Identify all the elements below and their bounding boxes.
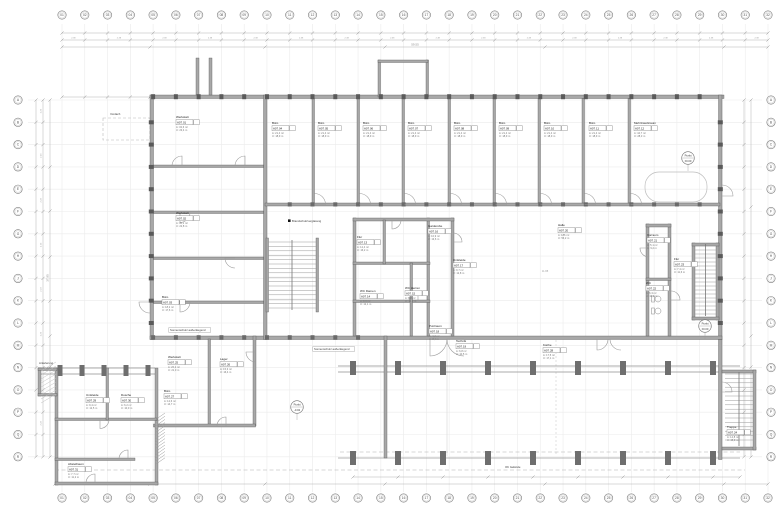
dim-text: 2.38 — [618, 38, 623, 40]
room-perimeter: U: 10,0 m — [121, 406, 132, 410]
annotation-text: Brandschutzverglasung — [292, 219, 322, 223]
grid-bubble-label: 17 — [425, 13, 429, 17]
room-tag: VorraumA07.21A: 5,1 m²U: 9,2 m — [647, 233, 670, 250]
room-id: A07.25 — [169, 361, 179, 365]
grid-bubble: 31 — [741, 494, 749, 502]
grid-bubble-label: 32 — [766, 496, 770, 500]
dim-text: 2.23 — [41, 108, 43, 113]
grid-bubble: K — [14, 297, 22, 305]
grid-bubble-label: 12 — [311, 496, 315, 500]
planning-grid — [28, 24, 768, 492]
grid-bubble-label: 12 — [311, 13, 315, 17]
grid-bubble: G — [14, 230, 22, 238]
dim-text: 2.38 — [71, 38, 76, 40]
annotation: OK Gelände — [505, 465, 521, 469]
grid-bubble-label: 06 — [174, 13, 178, 17]
grid-bubble: 09 — [240, 494, 248, 502]
door-swing — [671, 291, 680, 300]
grid-bubble-label: 03 — [106, 496, 110, 500]
door-swing — [453, 233, 462, 242]
grid-bubble: 14 — [354, 11, 362, 19]
grid-bubble-label: 08 — [220, 13, 224, 17]
grid-bubble-label: 27 — [652, 496, 656, 500]
room-name: Abstellraum — [68, 462, 84, 466]
grid-bubble: 32 — [764, 494, 772, 502]
grid-bubble: E — [14, 185, 22, 193]
door-swing — [430, 339, 447, 356]
grid-bubble: R — [14, 453, 22, 461]
room-id: A07.27 — [165, 395, 175, 399]
grid-bubble: 02 — [81, 11, 89, 19]
grid-bubble: 29 — [695, 11, 703, 19]
grid-bubble: J — [767, 274, 775, 282]
room-name: Büro — [162, 295, 169, 299]
door-swing — [610, 339, 621, 350]
grid-bubble-label: Q — [770, 433, 773, 437]
room-perimeter: U: 18,9 m — [318, 134, 329, 138]
room-id: A07.08 — [455, 127, 465, 131]
room-name: Büro — [363, 121, 370, 125]
door-swing — [119, 450, 128, 459]
grid-bubble-label: 24 — [584, 496, 588, 500]
room-id: A07.31 — [69, 468, 79, 472]
dim-text: 2.23 — [41, 242, 43, 247]
annotation: Sonnenschutz außenliegend — [313, 347, 355, 352]
grid-bubble: 13 — [331, 494, 339, 502]
dim-text: 2.23 — [41, 153, 43, 158]
room-perimeter: U: 21,0 m — [168, 368, 179, 372]
room-perimeter: U: 11,6 m — [674, 270, 685, 274]
grid-bubble-label: L — [770, 321, 772, 325]
room-id: A07.30 — [122, 399, 132, 403]
grid-bubble: 16 — [399, 494, 407, 502]
grid-bubble-label: 07 — [197, 496, 201, 500]
annotation-text: Vordach — [110, 112, 121, 116]
grid-bubble: 31 — [741, 11, 749, 19]
grid-bubble-label: 28 — [675, 13, 679, 17]
room-perimeter: U: 16,2 m — [357, 248, 368, 252]
room-tag: TechnikA07.19A: 6,8 m²U: 10,5 m — [456, 339, 479, 356]
punkt-label: Punkt — [702, 322, 709, 326]
grid-bubble-label: 14 — [356, 13, 360, 17]
grid-bubble-label: 14 — [356, 496, 360, 500]
room-perimeter: U: 11,2 m — [68, 475, 79, 479]
room-tag: WerkstattA07.01A: 32,6 m²U: 23,4 m — [176, 115, 199, 132]
room-tag: BüroA07.05A: 21,4 m²U: 18,9 m — [318, 121, 341, 138]
room-tag: BüroA07.04A: 21,4 m²U: 18,9 m — [272, 121, 295, 138]
room-id: A07.20 — [559, 229, 569, 233]
room-name: Werkstatt — [176, 115, 189, 119]
punkt-marker: Punkt-0.02 — [291, 401, 304, 420]
grid-bubble: 27 — [650, 11, 658, 19]
grid-bubble-label: 24 — [584, 13, 588, 17]
grid-bubble-label: 23 — [561, 13, 565, 17]
grid-bubble: 15 — [377, 11, 385, 19]
grid-bubble: 05 — [149, 11, 157, 19]
grid-bubble: 21 — [513, 11, 521, 19]
grid-bubble: 30 — [718, 11, 726, 19]
door-swing — [235, 156, 245, 166]
room-id: A07.22 — [647, 287, 657, 291]
room-name: Halle — [558, 223, 565, 227]
room-perimeter: U: 12,3 m — [405, 299, 416, 303]
dim-text: 2.38 — [253, 38, 258, 40]
grid-bubble: 18 — [445, 11, 453, 19]
annotation: Anlieferung — [39, 361, 54, 365]
room-tag: FlurA07.13A: 12,4 m²U: 16,2 m — [357, 235, 380, 252]
annotation: Sonnenschutz außenliegend — [169, 328, 211, 333]
grid-bubble: N — [14, 363, 22, 371]
room-perimeter: U: 16,4 m — [220, 370, 231, 374]
grid-bubble: M — [767, 341, 775, 349]
room-name: Büro — [318, 121, 325, 125]
room-id: A07.26 — [221, 363, 231, 367]
grid-bubble: O — [767, 386, 775, 394]
door-swing — [597, 339, 608, 350]
grid-bubbles: 0101020203030404050506060707080809091010… — [14, 11, 775, 502]
room-perimeter: U: 12,5 m — [86, 406, 97, 410]
dim-total-top: 59.55 — [411, 43, 419, 47]
grid-bubble-label: 11 — [288, 13, 292, 17]
grid-bubble: D — [767, 163, 775, 171]
dim-text: 2.38 — [299, 38, 304, 40]
room-name: WC Damen — [360, 289, 376, 293]
room-name: Umkleide — [86, 393, 99, 397]
grid-bubble-label: 28 — [675, 496, 679, 500]
hatch — [41, 362, 165, 465]
grid-bubble-label: 25 — [607, 13, 611, 17]
grid-bubble: P — [14, 408, 22, 416]
dim-text: 2.23 — [41, 287, 43, 292]
room-name: Büro — [499, 121, 506, 125]
grid-bubble: Q — [767, 430, 775, 438]
grid-bubble-label: 03 — [106, 13, 110, 17]
room-perimeter: U: 17,1 m — [543, 356, 554, 360]
dim-text: 2.38 — [709, 38, 714, 40]
grid-bubble: 25 — [604, 494, 612, 502]
room-tag: BüroA07.08A: 21,4 m²U: 18,9 m — [454, 121, 477, 138]
door-swing — [722, 185, 733, 196]
room-perimeter: U: 9,2 m — [647, 246, 657, 250]
grid-bubble-label: 26 — [630, 496, 634, 500]
room-name: Dusche — [121, 393, 132, 397]
room-perimeter: U: 10,1 m — [646, 294, 657, 298]
room-name: Büro — [408, 121, 415, 125]
grid-bubble: 27 — [650, 494, 658, 502]
room-id: A07.24 — [728, 431, 738, 435]
grid-bubble-label: 05 — [151, 13, 155, 17]
room-tag: BüroA07.06A: 21,4 m²U: 18,9 m — [363, 121, 386, 138]
grid-bubble-label: 16 — [402, 13, 406, 17]
room-tag: AbstellraumA07.31A: 7,7 m²U: 11,2 m — [68, 462, 91, 479]
room-name: Putzraum — [429, 324, 442, 328]
grid-bubble: 03 — [103, 494, 111, 502]
grid-bubble-label: 20 — [493, 13, 497, 17]
room-perimeter: U: 22,8 m — [176, 224, 187, 228]
room-id: A07.16 — [429, 230, 439, 234]
room-perimeter: U: 12,1 m — [360, 302, 371, 306]
grid-bubble-label: 22 — [538, 13, 542, 17]
room-id: A07.29 — [87, 399, 97, 403]
room-name: Flur — [357, 235, 362, 239]
door-swing — [172, 156, 182, 166]
grid-bubble-label: 09 — [242, 13, 246, 17]
grid-bubble-label: 01 — [60, 13, 64, 17]
room-name: Flur — [674, 257, 679, 261]
grid-bubble: 09 — [240, 11, 248, 19]
grid-bubble-label: 10 — [265, 13, 269, 17]
grid-bubble-label: 27 — [652, 13, 656, 17]
grid-bubble: D — [14, 163, 22, 171]
room-name: WC — [646, 281, 652, 285]
grid-bubble: 29 — [695, 494, 703, 502]
punkt-value: ±0.00 — [685, 159, 692, 163]
room-tag: UmkleideA07.17A: 9,7 m²U: 12,8 m — [453, 258, 476, 275]
grid-bubble: M — [14, 341, 22, 349]
grid-bubble-label: 04 — [128, 13, 132, 17]
room-tag: DuscheA07.30A: 6,2 m²U: 10,0 m — [121, 393, 144, 410]
grid-bubble-label: Q — [17, 433, 20, 437]
grid-bubble: 08 — [217, 11, 225, 19]
room-id: A07.13 — [358, 241, 368, 245]
grid-bubble: J — [14, 274, 22, 282]
grid-bubble: 04 — [126, 11, 134, 19]
grid-bubble-label: 15 — [379, 496, 383, 500]
dim-text: 11.88 — [542, 269, 549, 273]
grid-bubble: 28 — [673, 494, 681, 502]
room-tag: WerkstattA07.25A: 26,2 m²U: 21,0 m — [168, 355, 191, 372]
room-tag: BüroA07.09A: 21,4 m²U: 18,9 m — [499, 121, 522, 138]
grid-bubble-label: 08 — [220, 496, 224, 500]
room-name: Büro — [544, 121, 551, 125]
dim-text: 2.38 — [390, 38, 395, 40]
room-id: A07.05 — [319, 127, 329, 131]
punkt-value: ±0.00 — [702, 327, 709, 331]
door-swing — [392, 220, 401, 229]
punkt-marker: Punkt±0.00 — [682, 152, 695, 171]
room-name: Mehrzweckraum — [634, 121, 657, 125]
grid-bubble: N — [767, 363, 775, 371]
grid-bubble-label: 10 — [265, 496, 269, 500]
grid-bubble-label: 31 — [743, 13, 747, 17]
room-perimeter: U: 18,9 m — [272, 134, 283, 138]
room-id: A07.12 — [635, 127, 645, 131]
room-perimeter: U: 23,4 m — [176, 128, 187, 132]
grid-bubble: C — [767, 140, 775, 148]
grid-bubble-label: 18 — [447, 496, 451, 500]
room-tag: BüroA07.03A: 18,2 m²U: 17,6 m — [162, 295, 185, 312]
room-id: A07.03 — [163, 301, 173, 305]
room-perimeter: U: 13,6 m — [428, 237, 439, 241]
room-perimeter: U: 8,4 m — [429, 337, 439, 341]
annotation: Vordach — [110, 112, 121, 116]
grid-bubble: 11 — [286, 11, 294, 19]
grid-bubble: 10 — [263, 11, 271, 19]
room-perimeter: U: 18,9 m — [499, 134, 510, 138]
grid-bubble-label: 29 — [698, 496, 702, 500]
room-perimeter: U: 18,9 m — [408, 134, 419, 138]
dim-text: 2.38 — [663, 38, 668, 40]
grid-bubble: 23 — [559, 494, 567, 502]
room-perimeter: U: 18,9 m — [363, 134, 374, 138]
grid-bubble: 20 — [491, 11, 499, 19]
grid-bubble-label: 23 — [561, 496, 565, 500]
grid-bubble-label: G — [770, 232, 773, 236]
room-perimeter: U: 15,9 m — [727, 438, 738, 442]
room-id: A07.02 — [177, 217, 187, 221]
annotation: Brandschutzverglasung — [288, 219, 322, 223]
grid-bubble-label: 02 — [83, 496, 87, 500]
room-name: Garderobe — [428, 224, 443, 228]
room-id: A07.04 — [273, 127, 283, 131]
room-tag: WC DamenA07.14A: 8,6 m²U: 12,1 m — [360, 289, 383, 306]
room-perimeter: U: 28,3 m — [634, 134, 645, 138]
grid-bubble-label: 16 — [402, 496, 406, 500]
room-tag: HalleA07.20A: 186 m²U: 56,2 m — [558, 223, 581, 240]
grid-bubble-label: 25 — [607, 496, 611, 500]
grid-bubble: 17 — [422, 11, 430, 19]
room-id: A07.11 — [590, 127, 599, 131]
grid-bubble: 16 — [399, 11, 407, 19]
grid-bubble-label: L — [17, 321, 19, 325]
punkt-label: Punkt — [685, 154, 692, 158]
room-tag: BüroA07.10A: 21,4 m²U: 18,9 m — [544, 121, 567, 138]
grid-bubble: 32 — [764, 11, 772, 19]
door-swing — [139, 302, 150, 313]
room-tag: UmkleideA07.29A: 9,4 m²U: 12,5 m — [86, 393, 109, 410]
grid-bubble-label: 32 — [766, 13, 770, 17]
room-perimeter: U: 18,9 m — [589, 134, 600, 138]
grid-bubble: E — [767, 185, 775, 193]
grid-bubble: 06 — [172, 11, 180, 19]
grid-bubble-label: 13 — [333, 496, 337, 500]
grid-bubble: A — [767, 96, 775, 104]
grid-bubble: 18 — [445, 494, 453, 502]
grid-bubble: L — [14, 319, 22, 327]
grid-bubble: Q — [14, 430, 22, 438]
toilet-icon — [655, 308, 661, 314]
grid-bubble-label: 20 — [493, 496, 497, 500]
grid-bubble-label: 05 — [151, 496, 155, 500]
dim-text: 2.38 — [436, 38, 441, 40]
grid-bubble-label: M — [770, 343, 773, 347]
grid-bubble: 04 — [126, 494, 134, 502]
room-id: A07.28 — [544, 349, 554, 353]
grid-bubble-label: G — [17, 232, 20, 236]
grid-bubble: 25 — [604, 11, 612, 19]
room-id: A07.23 — [675, 263, 685, 267]
grid-bubble: B — [14, 118, 22, 126]
annotation-text: Anlieferung — [39, 361, 54, 365]
punkt-value: -0.02 — [294, 408, 301, 412]
room-perimeter: U: 18,9 m — [454, 134, 465, 138]
grid-bubble: 19 — [468, 494, 476, 502]
annotation-text: OK Gelände — [505, 465, 521, 469]
floor-plan-sheet: 2.382.382.382.382.382.382.382.382.382.38… — [0, 0, 780, 507]
grid-bubble: 07 — [194, 11, 202, 19]
grid-bubble-label: 30 — [721, 496, 725, 500]
grid-bubble: 07 — [194, 494, 202, 502]
grid-bubble-label: F — [770, 210, 772, 214]
room-name: Büro — [454, 121, 461, 125]
room-perimeter: U: 18,9 m — [544, 134, 555, 138]
grid-bubble: F — [14, 207, 22, 215]
dim-text: 2.38 — [572, 38, 577, 40]
room-id: A07.17 — [454, 264, 464, 268]
grid-bubble-label: 15 — [379, 13, 383, 17]
grid-bubble: P — [767, 408, 775, 416]
dim-text: 2.23 — [41, 420, 43, 425]
annotation-text: Sonnenschutz außenliegend — [170, 328, 206, 332]
grid-bubble: O — [14, 386, 22, 394]
room-name: Büro — [272, 121, 279, 125]
grid-bubble: A — [14, 96, 22, 104]
dim-text: 2.23 — [41, 197, 43, 202]
room-id: A07.15 — [406, 292, 416, 296]
grid-bubble-label: 30 — [721, 13, 725, 17]
room-perimeter: U: 56,2 m — [558, 236, 569, 240]
room-id: A07.10 — [545, 127, 555, 131]
room-id: A07.14 — [361, 295, 371, 299]
grid-bubble: 19 — [468, 11, 476, 19]
grid-bubble-label: 21 — [516, 496, 520, 500]
dim-text: 2.38 — [754, 38, 759, 40]
grid-bubble-label: 13 — [333, 13, 337, 17]
punkt-label: Punkt — [294, 403, 301, 407]
dim-text: 2.23 — [41, 331, 43, 336]
dim-text: 2.38 — [208, 38, 213, 40]
grid-bubble: 08 — [217, 494, 225, 502]
door-swing — [86, 474, 95, 483]
grid-bubble: 21 — [513, 494, 521, 502]
grid-bubble: 20 — [491, 494, 499, 502]
grid-bubble-label: M — [17, 343, 20, 347]
room-name: Vorraum — [647, 233, 659, 237]
grid-bubble-label: 17 — [425, 496, 429, 500]
grid-bubble: H — [14, 252, 22, 260]
grid-bubble: K — [767, 297, 775, 305]
grid-bubble: R — [767, 453, 775, 461]
grid-bubble: 15 — [377, 494, 385, 502]
dashed-lines — [38, 118, 745, 470]
grid-bubble-label: F — [17, 210, 19, 214]
grid-bubble: L — [767, 319, 775, 327]
grid-bubble: 22 — [536, 11, 544, 19]
grid-bubble: F — [767, 207, 775, 215]
room-name: Werkstatt — [176, 211, 189, 215]
grid-bubble: 17 — [422, 494, 430, 502]
room-perimeter: U: 17,6 m — [162, 308, 173, 312]
grid-bubble-label: 19 — [470, 13, 474, 17]
dim-text: 2.38 — [527, 38, 532, 40]
grid-bubble-label: 21 — [516, 13, 520, 17]
grid-bubble: 24 — [582, 494, 590, 502]
grid-bubble: 01 — [58, 11, 66, 19]
room-perimeter: U: 10,5 m — [456, 352, 467, 356]
grid-bubble-label: 04 — [128, 496, 132, 500]
grid-bubble: 03 — [103, 11, 111, 19]
grid-bubble-label: O — [770, 388, 773, 392]
grid-bubble: 30 — [718, 494, 726, 502]
grid-bubble: 05 — [149, 494, 157, 502]
grid-bubble-label: 26 — [630, 13, 634, 17]
room-id: A07.09 — [500, 127, 510, 131]
room-id: A07.01 — [177, 121, 187, 125]
grid-bubble: C — [14, 140, 22, 148]
grid-bubble-label: O — [17, 388, 20, 392]
room-id: A07.06 — [364, 127, 374, 131]
room-id: A07.19 — [457, 345, 467, 349]
